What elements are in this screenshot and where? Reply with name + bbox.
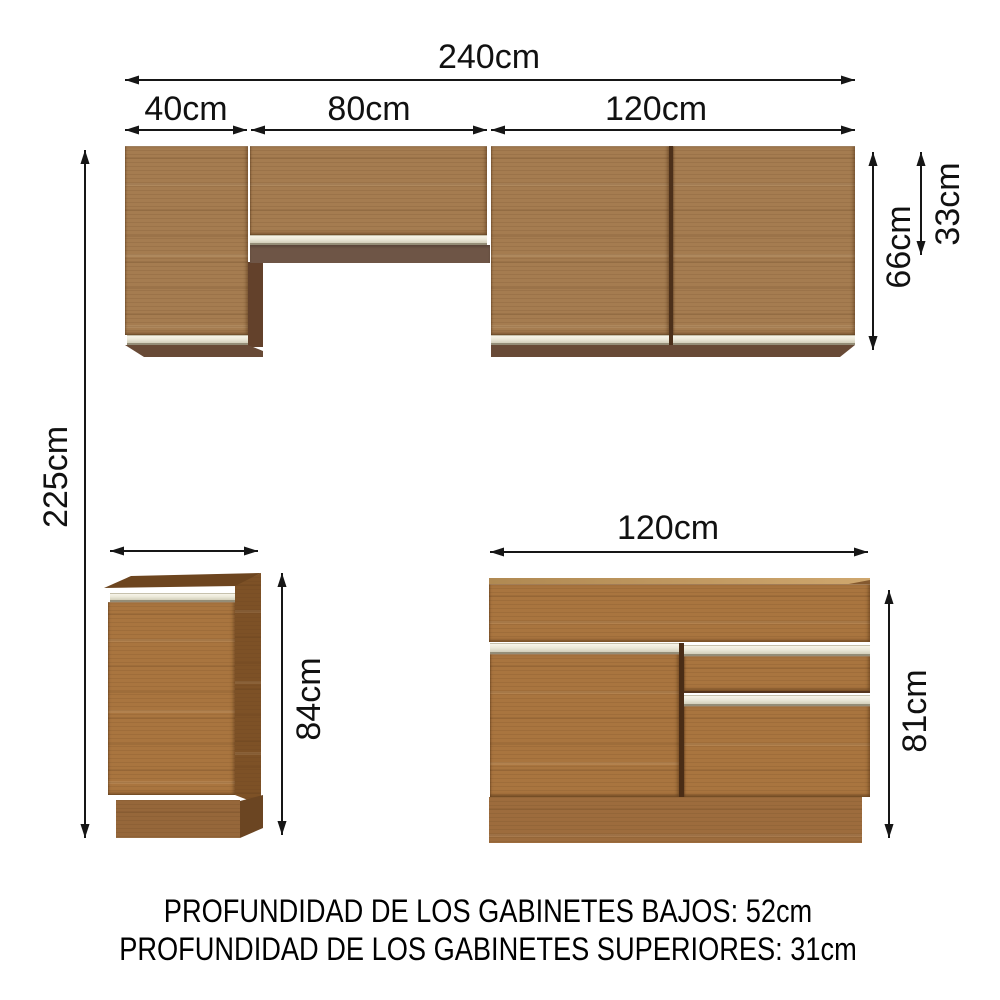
label-section-40: 40cm bbox=[144, 92, 227, 126]
sink-cabinet-left-door bbox=[490, 654, 679, 797]
small-cabinet-side-panel bbox=[235, 573, 261, 806]
small-cabinet-door bbox=[108, 602, 235, 795]
label-sink-height: 81cm bbox=[898, 669, 932, 752]
upper-middle-cabinet-shelf bbox=[250, 245, 490, 263]
upper-middle-cabinet-door bbox=[250, 146, 487, 235]
label-upper-tall-height: 66cm bbox=[882, 205, 916, 288]
sink-cabinet-plinth bbox=[489, 797, 862, 843]
upper-left-cabinet-side-panel bbox=[248, 262, 263, 347]
sink-cabinet-drawer-handle bbox=[684, 645, 870, 656]
depth-note-upper-cabinets: PROFUNDIDAD DE LOS GABINETES SUPERIORES:… bbox=[119, 933, 857, 965]
cabinet-dimension-diagram: 240cm 40cm 80cm 120cm 225cm 66cm 33cm 84… bbox=[0, 0, 1000, 1000]
label-section-80: 80cm bbox=[327, 92, 410, 126]
sink-cabinet-apron bbox=[489, 584, 870, 642]
upper-right-cabinet-handle-right bbox=[673, 335, 855, 345]
label-section-120: 120cm bbox=[605, 92, 707, 126]
small-cabinet-handle bbox=[110, 593, 235, 602]
upper-right-cabinet-handle-left bbox=[491, 335, 669, 345]
upper-right-cabinet-door-right bbox=[673, 146, 855, 335]
upper-left-cabinet-handle bbox=[127, 335, 248, 345]
label-overall-width: 240cm bbox=[438, 40, 540, 74]
depth-note-lower-cabinets: PROFUNDIDAD DE LOS GABINETES BAJOS: 52cm bbox=[164, 895, 812, 927]
upper-right-cabinet-door-left bbox=[491, 146, 669, 335]
upper-right-cabinet-underside bbox=[491, 345, 855, 357]
upper-left-cabinet-underside bbox=[125, 345, 263, 357]
label-upper-short-height: 33cm bbox=[931, 162, 965, 245]
label-small-cabinet-height: 84cm bbox=[292, 657, 326, 740]
small-cabinet-plinth-side bbox=[240, 795, 263, 839]
small-cabinet-plinth bbox=[116, 800, 240, 838]
upper-left-cabinet-door bbox=[125, 146, 248, 335]
sink-cabinet-left-door-handle bbox=[490, 643, 679, 654]
sink-cabinet-right-door bbox=[684, 706, 870, 797]
sink-cabinet-right-door-handle bbox=[684, 695, 870, 706]
upper-middle-cabinet-handle bbox=[250, 235, 487, 245]
label-overall-height: 225cm bbox=[39, 426, 73, 528]
sink-cabinet-drawer-front bbox=[684, 656, 870, 693]
label-sink-width: 120cm bbox=[617, 511, 719, 545]
